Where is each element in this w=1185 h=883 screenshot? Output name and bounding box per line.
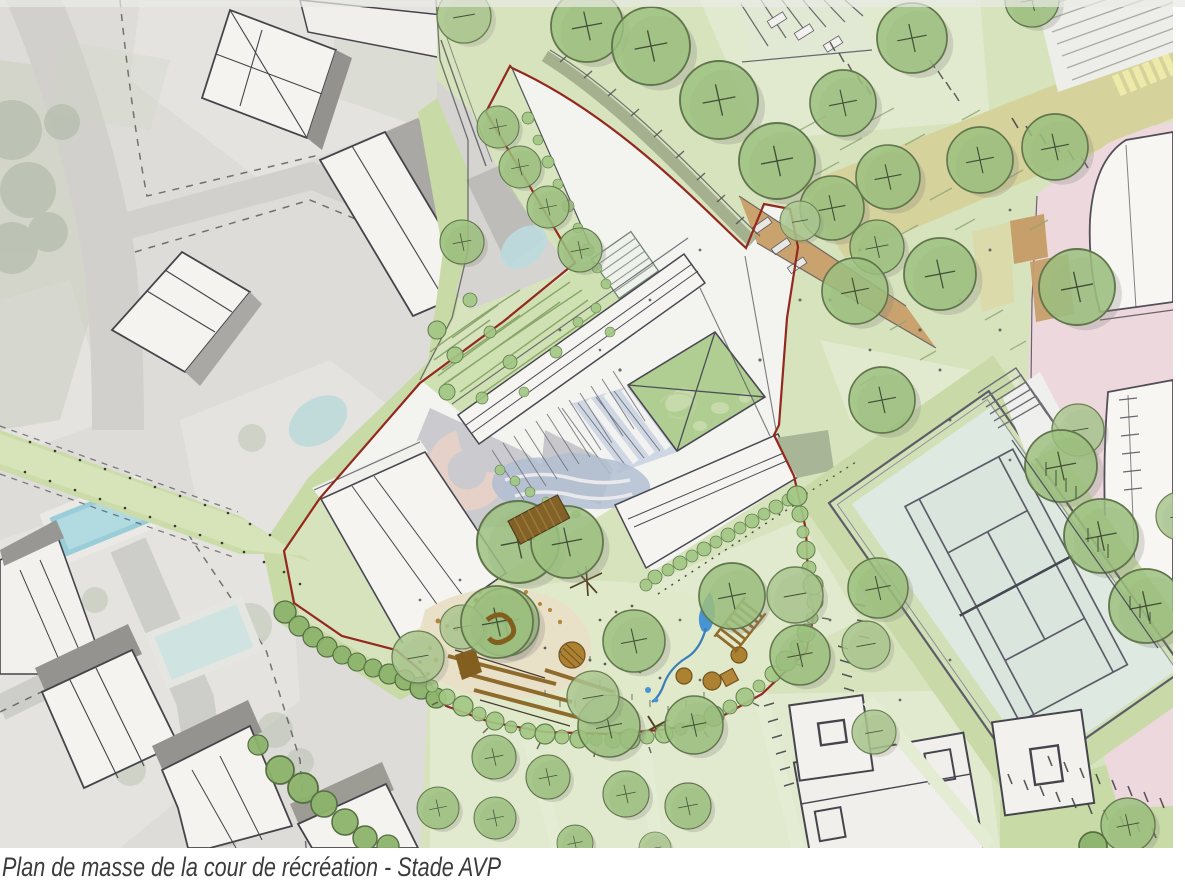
svg-text:Plan de masse de la cour de ré: Plan de masse de la cour de récréation -… — [2, 852, 501, 882]
